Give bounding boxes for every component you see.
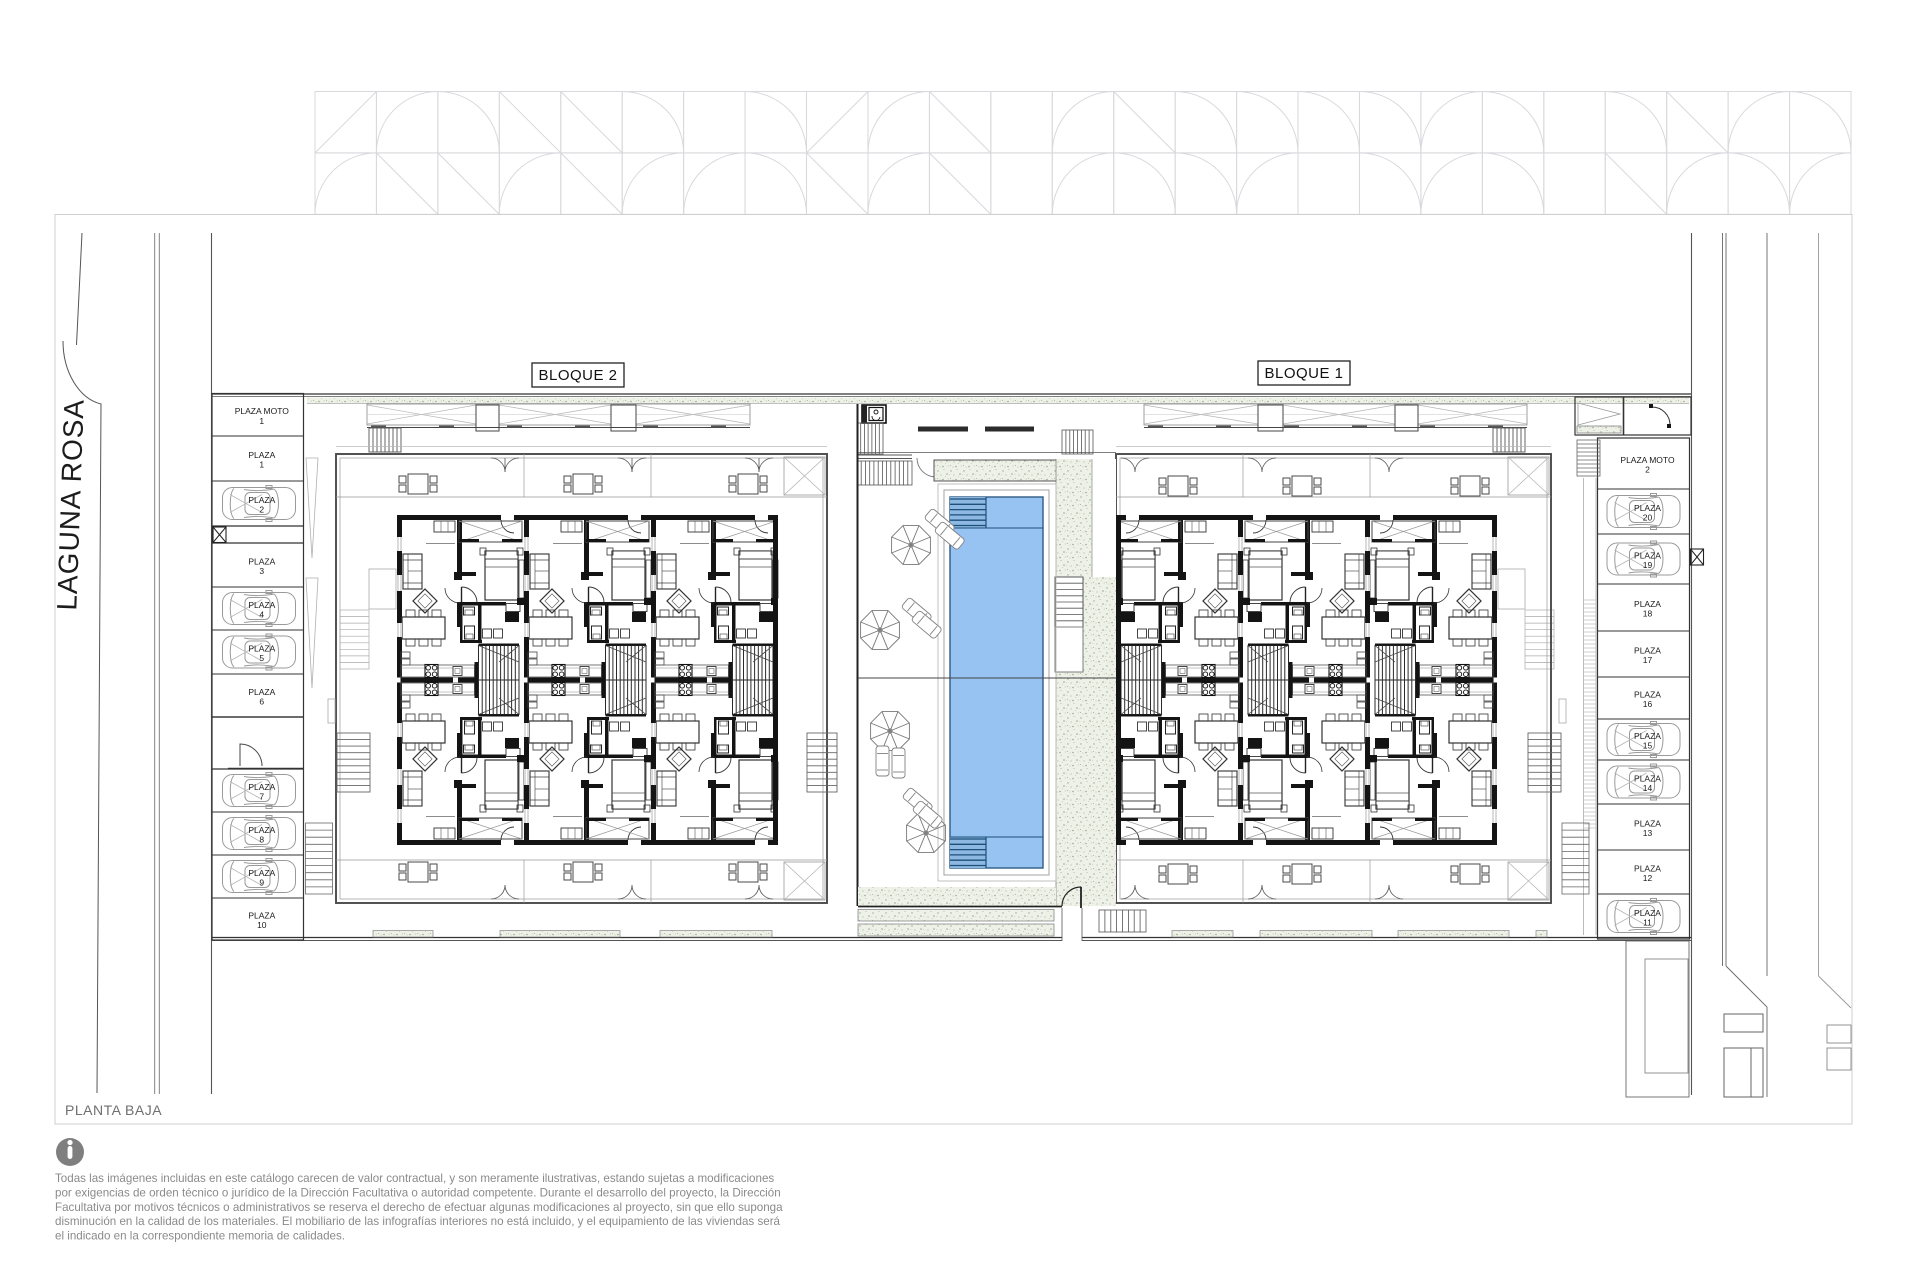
svg-text:9: 9 bbox=[259, 878, 264, 888]
svg-text:11: 11 bbox=[1643, 918, 1652, 928]
svg-text:PLAZA: PLAZA bbox=[248, 868, 275, 878]
svg-text:15: 15 bbox=[1643, 741, 1653, 751]
svg-text:PLAZA: PLAZA bbox=[248, 557, 275, 567]
svg-text:PLAZA: PLAZA bbox=[248, 687, 275, 697]
svg-text:PLAZA: PLAZA bbox=[1634, 731, 1661, 741]
svg-text:6: 6 bbox=[259, 697, 264, 707]
svg-text:7: 7 bbox=[259, 792, 264, 802]
svg-text:el indicado en la correspondie: el indicado en la correspondiente memori… bbox=[55, 1230, 345, 1243]
svg-text:PLAZA: PLAZA bbox=[1634, 774, 1661, 784]
svg-text:8: 8 bbox=[259, 835, 264, 845]
svg-text:Todas las imágenes incluidas e: Todas las imágenes incluidas en este cat… bbox=[55, 1172, 774, 1185]
svg-text:PLAZA MOTO: PLAZA MOTO bbox=[235, 406, 290, 416]
svg-text:5: 5 bbox=[259, 653, 264, 663]
svg-text:10: 10 bbox=[257, 920, 267, 930]
svg-text:por exigencias de orden técni: por exigencias de orden técnico o jurídi… bbox=[55, 1186, 781, 1199]
svg-text:12: 12 bbox=[1643, 873, 1653, 883]
svg-text:PLAZA: PLAZA bbox=[248, 911, 275, 921]
svg-text:PLANTA BAJA: PLANTA BAJA bbox=[65, 1102, 162, 1118]
svg-text:PLAZA: PLAZA bbox=[248, 495, 275, 505]
svg-text:14: 14 bbox=[1643, 783, 1653, 793]
svg-text:16: 16 bbox=[1643, 699, 1653, 709]
svg-text:disminución en la calidad de: disminución en la calidad de los materia… bbox=[55, 1215, 781, 1228]
svg-text:PLAZA: PLAZA bbox=[248, 644, 275, 654]
svg-text:13: 13 bbox=[1643, 828, 1653, 838]
svg-text:2: 2 bbox=[1645, 465, 1650, 475]
svg-text:PLAZA: PLAZA bbox=[1634, 503, 1661, 513]
svg-text:PLAZA: PLAZA bbox=[248, 825, 275, 835]
svg-text:PLAZA: PLAZA bbox=[1634, 599, 1661, 609]
svg-text:BLOQUE 1: BLOQUE 1 bbox=[1264, 365, 1343, 382]
svg-text:PLAZA: PLAZA bbox=[1634, 646, 1661, 656]
svg-text:Facultativa por motivos técnic: Facultativa por motivos técnicos o admin… bbox=[55, 1201, 783, 1214]
svg-text:1: 1 bbox=[259, 460, 264, 470]
svg-text:3: 3 bbox=[259, 566, 264, 576]
svg-text:PLAZA: PLAZA bbox=[1634, 864, 1661, 874]
svg-text:PLAZA: PLAZA bbox=[1634, 551, 1661, 561]
svg-text:20: 20 bbox=[1643, 513, 1653, 523]
svg-text:PLAZA: PLAZA bbox=[248, 450, 275, 460]
svg-text:PLAZA MOTO: PLAZA MOTO bbox=[1620, 455, 1675, 465]
svg-text:17: 17 bbox=[1643, 655, 1653, 665]
svg-text:2: 2 bbox=[259, 505, 264, 515]
svg-text:PLAZA: PLAZA bbox=[1634, 690, 1661, 700]
svg-text:19: 19 bbox=[1643, 560, 1653, 570]
svg-text:PLAZA: PLAZA bbox=[1634, 819, 1661, 829]
svg-text:PLAZA: PLAZA bbox=[248, 782, 275, 792]
svg-text:1: 1 bbox=[259, 416, 264, 426]
svg-text:PLAZA: PLAZA bbox=[248, 600, 275, 610]
svg-text:BLOQUE 2: BLOQUE 2 bbox=[538, 367, 617, 384]
svg-text:4: 4 bbox=[259, 610, 264, 620]
svg-text:18: 18 bbox=[1643, 609, 1653, 619]
svg-text:PLAZA: PLAZA bbox=[1634, 908, 1661, 918]
